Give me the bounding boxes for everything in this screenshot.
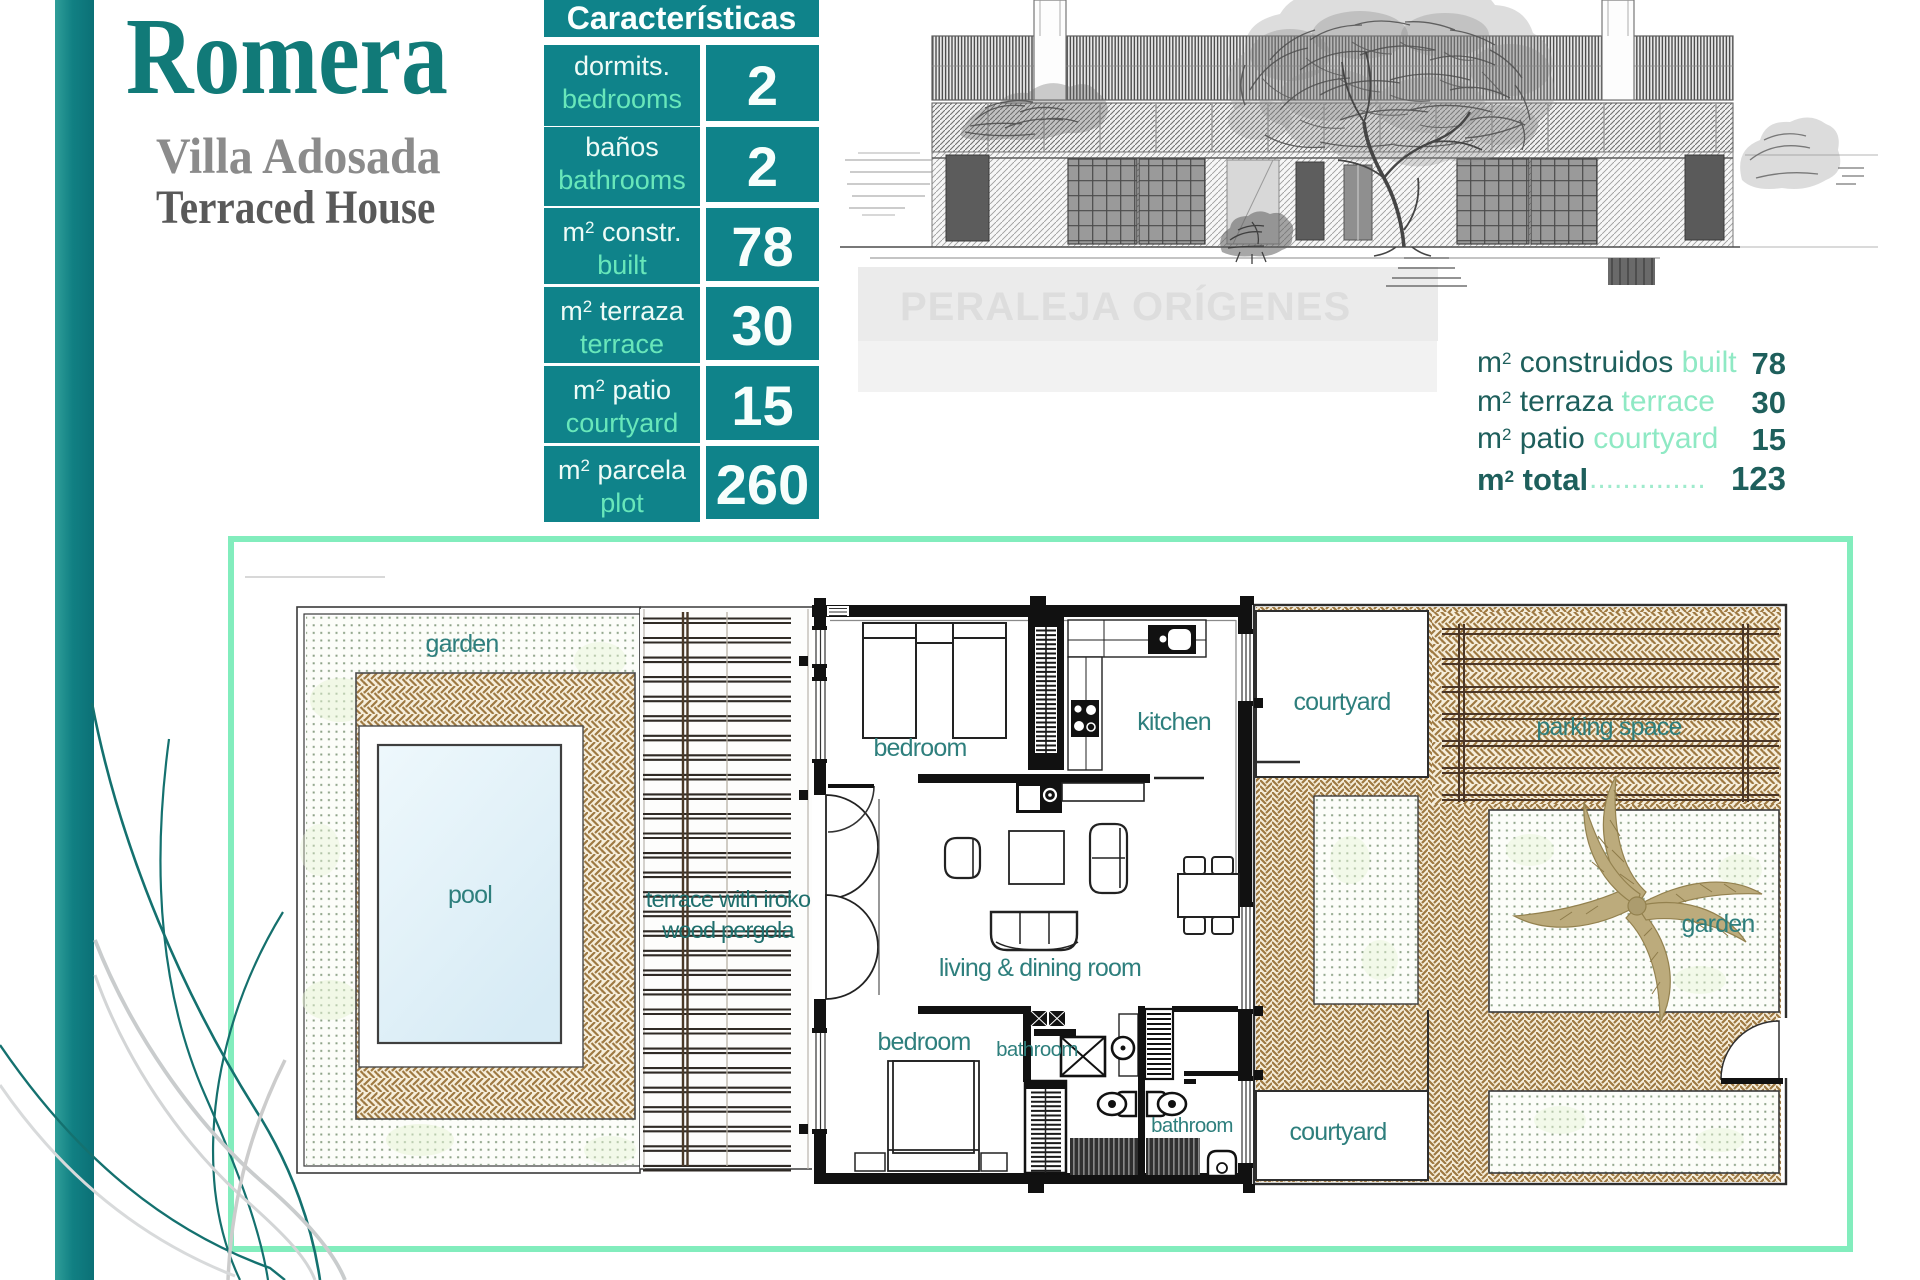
svg-text:courtyard: courtyard — [1293, 688, 1390, 716]
svg-text:living & dining room: living & dining room — [939, 954, 1141, 982]
svg-text:bathroom: bathroom — [996, 1038, 1078, 1061]
svg-text:bedroom: bedroom — [873, 734, 966, 762]
svg-text:PERALEJA ORÍGENES: PERALEJA ORÍGENES — [900, 284, 1351, 329]
svg-text:bathroom: bathroom — [1151, 1114, 1233, 1137]
svg-text:parking space: parking space — [1536, 713, 1681, 741]
svg-text:garden: garden — [425, 630, 498, 658]
svg-text:wood pergola: wood pergola — [661, 917, 795, 943]
svg-text:bedroom: bedroom — [877, 1028, 970, 1056]
svg-text:terrace with iroko: terrace with iroko — [646, 886, 811, 912]
svg-text:garden: garden — [1681, 910, 1754, 938]
svg-text:courtyard: courtyard — [1289, 1118, 1386, 1146]
svg-text:kitchen: kitchen — [1137, 708, 1211, 736]
svg-text:pool: pool — [448, 881, 492, 909]
